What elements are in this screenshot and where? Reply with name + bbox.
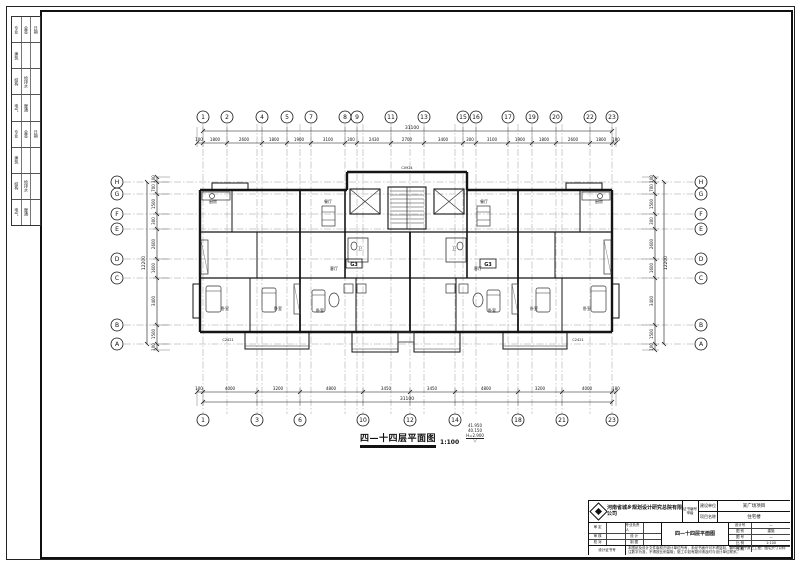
axis-right-label: H (699, 179, 704, 186)
staff-grid-cell: 专业负责人 (626, 523, 644, 533)
level-symbol-icon: ▽ (452, 439, 498, 443)
room-label: 餐厅 (480, 198, 488, 204)
company-name: 河南省城乡规划设计研究总院有限公司 (607, 505, 682, 517)
drawing-info-value: — (752, 535, 790, 540)
dim-bottom: 4800 (481, 386, 492, 391)
axis-top-label: 11 (387, 114, 395, 121)
project-row: 项目名称 住宅楼 (699, 512, 790, 522)
axis-right-label: C (699, 275, 703, 282)
drawing-info-label: 图 号 (729, 535, 752, 540)
dim-top: 2600 (568, 137, 579, 142)
staff-grid-cell (644, 534, 661, 539)
plan-rect (536, 288, 550, 312)
staff-grid-cell (607, 540, 625, 545)
plan-caption: 四—十四层平面图 1:100 (360, 431, 459, 447)
room-label: 卧室 (221, 305, 229, 311)
staff-grid-cell: 制 图 (626, 540, 644, 545)
dim-bottom: 3200 (535, 386, 546, 391)
axis-top-label: 19 (528, 114, 536, 121)
dim-top: 3100 (487, 137, 498, 142)
dim-left: 1500 (151, 198, 156, 209)
room-label: 餐厅 (324, 198, 332, 204)
title-block: 河南省城乡规划设计研究总院有限公司 证书编号 甲级 建设单位 某广场项目 项目名… (588, 500, 790, 555)
plan-ellipse (351, 242, 357, 250)
drawing-info-value: 建施 (752, 529, 790, 534)
staff-grid-row: 审 定专业负责人 (589, 523, 661, 534)
room-label: 卧室 (316, 307, 324, 313)
axis-top-label: 20 (552, 114, 560, 121)
staff-grid-cell: 审 定 (589, 523, 607, 533)
project-value: 住宅楼 (718, 512, 790, 522)
dim-top: 2700 (402, 137, 413, 142)
dim-bottom: 3450 (381, 386, 392, 391)
plan-rect (591, 286, 606, 312)
axis-top-label: 5 (285, 114, 289, 121)
axis-top-label: 15 (459, 114, 467, 121)
drawing-title-cell: 四—十四层平面图 (662, 523, 729, 545)
axis-top-label: 2 (225, 114, 229, 121)
dim-left: 1600 (151, 262, 156, 273)
staff-grid-cell (607, 523, 625, 533)
axis-top-label: 9 (355, 114, 359, 121)
axis-right-label: D (699, 256, 704, 263)
dim-bottom: 3450 (427, 386, 438, 391)
project-label: 项目名称 (699, 512, 718, 522)
staff-grid-cell: 审 核 (589, 534, 607, 539)
plan-ellipse (473, 293, 483, 307)
owner-row: 建设单位 某广场项目 (699, 501, 790, 512)
axis-top-label: 4 (260, 114, 264, 121)
plan-caption-title: 四—十四层平面图 (360, 431, 436, 447)
dim-right-overall: 12200 (663, 256, 669, 270)
axis-left-label: G (115, 191, 120, 198)
staff-grid-cell (607, 534, 625, 539)
drawing-info-label: 图 别 (729, 529, 752, 534)
dim-top: 100 (612, 137, 620, 142)
room-label: 厨房 (595, 198, 603, 204)
drawing-sheet: 专业会签日期建筑结构给排水电气暖通专业会签日期建筑结构给排水电气暖通 12457… (0, 0, 800, 565)
dim-bottom: 3200 (273, 386, 284, 391)
dim-left: 3400 (151, 295, 156, 306)
dim-left: 1500 (151, 328, 156, 339)
dim-top: 300 (466, 137, 474, 142)
copyright-note: 本图纸及设计文件版权归设计单位所有，未经书面许可不得复制、翻印或用于其它工程；图… (626, 546, 790, 555)
axis-right-label: B (699, 322, 703, 329)
dim-bottom: 4000 (225, 386, 236, 391)
window-tag: C2421 (222, 338, 233, 342)
dim-right: 2600 (649, 238, 654, 249)
plan-line (604, 240, 611, 274)
dim-left: 100 (151, 343, 156, 351)
company-logo-icon (592, 505, 605, 518)
dim-bottom: 4800 (326, 386, 337, 391)
dim-right: 100 (649, 343, 654, 351)
title-block-row-main: 审 定专业负责人审 核设 计校 对制 图 四—十四层平面图 设计号—图 别建施图… (589, 523, 790, 546)
dim-top: 1800 (210, 137, 221, 142)
dim-right: 1500 (649, 328, 654, 339)
dim-top: 1900 (294, 137, 305, 142)
plan-rect (477, 206, 490, 226)
dim-right: 700 (649, 184, 654, 192)
axis-top-label: 13 (420, 114, 428, 121)
plan-rect (322, 206, 335, 226)
drawing-info-grid: 设计号—图 别建施图 号—比 例1:100日 期— (729, 523, 790, 545)
axis-left-label: B (115, 322, 119, 329)
floor-plan-drawing: 1245789111315161719202223136101214182123… (0, 0, 800, 565)
axis-bottom-label: 3 (255, 417, 259, 424)
window-tag: C2421 (572, 338, 583, 342)
staff-grid: 审 定专业负责人审 核设 计校 对制 图 (589, 523, 662, 545)
dim-top: 100 (195, 137, 203, 142)
elevation-note: 41.950 40.150 H=2.900 ▽ (452, 423, 498, 443)
dim-left: 100 (151, 175, 156, 183)
plan-rect (357, 284, 366, 293)
dim-top: 1800 (269, 137, 280, 142)
plan-rect (459, 284, 468, 293)
plan-rect (503, 332, 567, 349)
axis-left-label: E (115, 226, 119, 233)
staff-grid-cell: 设 计 (626, 534, 644, 539)
axis-left-label: F (115, 211, 119, 218)
dim-left: 700 (151, 184, 156, 192)
dim-top: 1800 (539, 137, 550, 142)
dim-bottom: 100 (195, 386, 203, 391)
plan-rect (344, 284, 353, 293)
axis-bottom-label: 23 (608, 417, 616, 424)
title-block-row-note: 设计证书号 本图纸及设计文件版权归设计单位所有，未经书面许可不得复制、翻印或用于… (589, 546, 790, 555)
drawing-info-label: 设计号 (729, 523, 752, 528)
dim-top: 1900 (515, 137, 526, 142)
dim-top: 3100 (323, 137, 334, 142)
axis-bottom-label: 10 (359, 417, 367, 424)
axis-left-label: C (115, 275, 119, 282)
drawing-info-value: — (752, 523, 790, 528)
room-label: 卧室 (530, 305, 538, 311)
dim-top: 300 (347, 137, 355, 142)
room-label: 卫 (358, 246, 362, 251)
dim-right: 100 (649, 175, 654, 183)
axis-top-label: 22 (586, 114, 594, 121)
dim-bottom-overall: 31100 (400, 396, 414, 402)
axis-top-label: 23 (608, 114, 616, 121)
plan-ellipse (457, 242, 463, 250)
room-label: 客厅 (330, 265, 338, 271)
axis-bottom-label: 21 (558, 417, 566, 424)
dim-right: 300 (649, 217, 654, 225)
room-label: 卫 (452, 246, 456, 251)
axis-bottom-label: 1 (201, 417, 205, 424)
room-label: 卧室 (274, 305, 282, 311)
dim-right: 1500 (649, 198, 654, 209)
axis-top-label: 1 (201, 114, 205, 121)
axis-right-label: F (699, 211, 703, 218)
dim-top: 2430 (369, 137, 380, 142)
unit-type-label: G3 (484, 262, 492, 268)
resp-label: 设计证书号 (589, 546, 626, 555)
axis-right-label: G (699, 191, 704, 198)
plan-ellipse (329, 293, 339, 307)
company-cell: 河南省城乡规划设计研究总院有限公司 证书编号 甲级 (589, 501, 699, 522)
staff-grid-row: 校 对制 图 (589, 540, 661, 545)
room-label: 厨房 (209, 198, 217, 204)
certificate-value: 甲级 (687, 511, 694, 515)
axis-right-label: A (699, 341, 704, 348)
project-cells: 建设单位 某广场项目 项目名称 住宅楼 (699, 501, 790, 522)
staff-grid-cell (644, 540, 661, 545)
dim-left: 300 (151, 217, 156, 225)
dim-left-overall: 12200 (141, 256, 147, 270)
dim-bottom: 4000 (582, 386, 593, 391)
dim-top-overall: 31100 (405, 125, 419, 131)
owner-value: 某广场项目 (718, 501, 790, 511)
axis-top-label: 7 (309, 114, 313, 121)
unit-type-label: G3 (350, 262, 358, 268)
axis-top-label: 17 (504, 114, 512, 121)
axis-left-label: D (115, 256, 120, 263)
dim-bottom: 100 (612, 386, 620, 391)
room-label: 客厅 (474, 265, 482, 271)
owner-label: 建设单位 (699, 501, 718, 511)
plan-rect (245, 332, 309, 349)
dim-top: 1800 (596, 137, 607, 142)
staff-grid-cell (644, 523, 661, 533)
plan-rect (446, 284, 455, 293)
axis-left-label: A (115, 341, 120, 348)
plan-line (201, 240, 208, 274)
axis-left-label: H (115, 179, 120, 186)
title-block-row-company: 河南省城乡规划设计研究总院有限公司 证书编号 甲级 建设单位 某广场项目 项目名… (589, 501, 790, 523)
axis-top-label: 8 (343, 114, 347, 121)
dim-left: 2600 (151, 238, 156, 249)
plan-rect (398, 332, 414, 342)
dim-right: 1600 (649, 262, 654, 273)
room-label: 卧室 (583, 305, 591, 311)
room-label: 卧室 (488, 307, 496, 313)
staff-grid-cell: 校 对 (589, 540, 607, 545)
axis-bottom-label: 12 (406, 417, 414, 424)
certificate-cell: 证书编号 甲级 (682, 501, 697, 522)
dim-top: 3400 (438, 137, 449, 142)
axis-top-label: 16 (472, 114, 480, 121)
axis-bottom-label: 6 (298, 417, 302, 424)
axis-bottom-label: 18 (514, 417, 522, 424)
dim-top: 2600 (239, 137, 250, 142)
dim-right: 3400 (649, 295, 654, 306)
window-tag: C0924 (401, 166, 413, 170)
plan-rect (206, 286, 221, 312)
axis-right-label: E (699, 226, 703, 233)
